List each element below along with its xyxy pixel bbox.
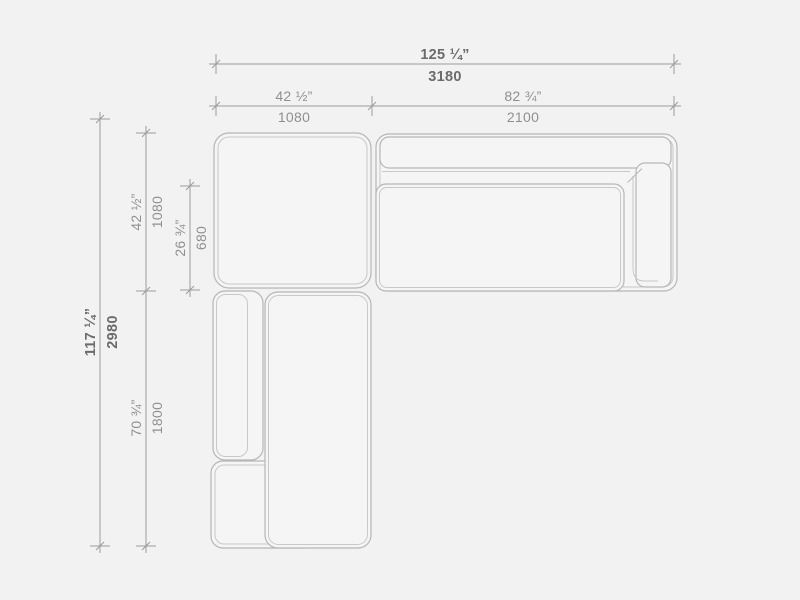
label-seat-depth-inches: 26 ¾” [172, 219, 188, 256]
label-overall-depth-inches: 117 ¼” [83, 308, 99, 357]
label-back-width-mm: 1080 [278, 109, 310, 125]
label-right-width-mm: 2100 [507, 109, 539, 125]
label-overall-width-mm: 3180 [428, 69, 461, 85]
label-chaise-depth-inches: 70 ¾” [128, 399, 144, 436]
corner-module-outline [214, 133, 371, 288]
drawing-background [0, 0, 800, 600]
chaise-seat [265, 292, 371, 548]
chaise-armrest [213, 291, 263, 460]
corner-module [214, 133, 371, 288]
right-sofa-module [376, 134, 677, 291]
label-corner-depth-inches: 42 ½” [128, 193, 144, 230]
sofa-dimension-drawing: 125 ¼” 3180 117 ¼” 2980 42 ½” 1080 82 ¾”… [0, 0, 800, 600]
right-module-seat-cushion [376, 184, 624, 291]
right-module-armrest [636, 163, 671, 287]
label-chaise-depth-mm: 1800 [149, 402, 165, 434]
label-right-width-inches: 82 ¾” [504, 88, 541, 104]
right-module-backrest [380, 137, 671, 168]
chaise-module [211, 291, 371, 548]
label-back-width-inches: 42 ½” [275, 88, 312, 104]
label-corner-depth-mm: 1080 [149, 196, 165, 228]
label-overall-depth-mm: 2980 [105, 315, 121, 348]
label-seat-depth-mm: 680 [193, 226, 209, 250]
dimension-drawing-canvas: 125 ¼” 3180 117 ¼” 2980 42 ½” 1080 82 ¾”… [0, 0, 800, 600]
label-overall-width-inches: 125 ¼” [420, 47, 469, 63]
